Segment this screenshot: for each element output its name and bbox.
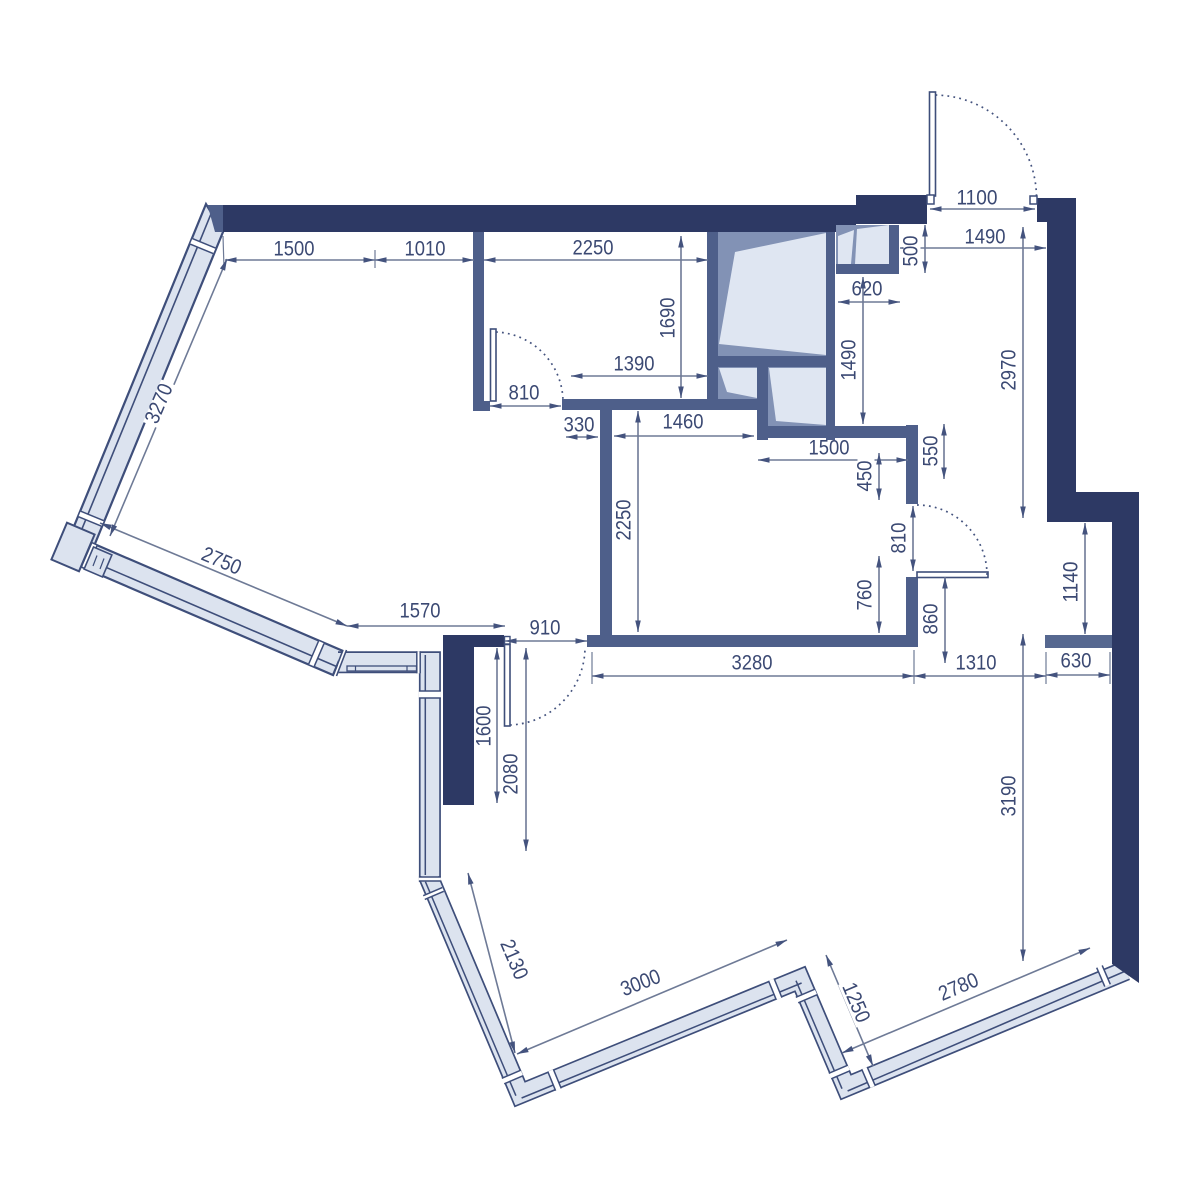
svg-text:1690: 1690	[657, 298, 680, 339]
svg-text:1490: 1490	[838, 340, 861, 381]
svg-text:910: 910	[530, 617, 561, 640]
svg-text:1570: 1570	[400, 600, 441, 623]
svg-text:810: 810	[888, 523, 911, 554]
svg-text:3280: 3280	[732, 652, 773, 675]
svg-text:500: 500	[900, 236, 923, 267]
svg-text:1310: 1310	[956, 652, 997, 675]
svg-text:630: 630	[1061, 650, 1092, 673]
svg-text:330: 330	[564, 414, 595, 437]
svg-text:1100: 1100	[957, 187, 998, 210]
svg-text:1390: 1390	[614, 353, 655, 376]
svg-text:450: 450	[854, 461, 877, 492]
svg-text:860: 860	[920, 604, 943, 635]
svg-text:3190: 3190	[998, 776, 1021, 817]
svg-text:1140: 1140	[1060, 562, 1083, 603]
svg-text:1500: 1500	[274, 238, 315, 261]
svg-text:1010: 1010	[405, 238, 446, 261]
svg-text:2250: 2250	[613, 500, 636, 541]
svg-text:760: 760	[854, 580, 877, 611]
svg-text:2080: 2080	[500, 754, 523, 795]
svg-text:1460: 1460	[663, 411, 704, 434]
svg-text:1490: 1490	[965, 226, 1006, 249]
svg-text:2250: 2250	[573, 237, 614, 260]
svg-text:620: 620	[852, 278, 883, 301]
svg-text:1500: 1500	[809, 437, 850, 460]
svg-text:2970: 2970	[998, 350, 1021, 391]
svg-text:810: 810	[509, 382, 540, 405]
svg-text:550: 550	[920, 436, 943, 467]
svg-text:1600: 1600	[473, 706, 496, 747]
